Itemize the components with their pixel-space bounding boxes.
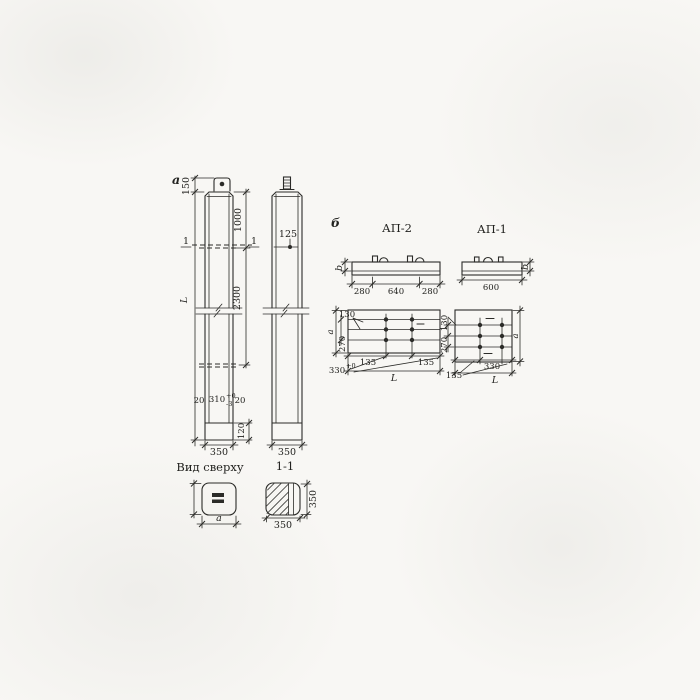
bolt-dot bbox=[384, 338, 388, 342]
dim-20-right: 20 bbox=[235, 396, 246, 406]
dim-130-ap1: 130 bbox=[440, 315, 450, 331]
top-view: Вид сверху a bbox=[176, 460, 243, 528]
dim-310-tol-minus: -3 bbox=[226, 400, 232, 408]
ap2-group: АП-2 b 280 640 280 bbox=[326, 221, 445, 384]
dim-270-ap2: 270 bbox=[338, 336, 348, 352]
column-top-outline bbox=[202, 483, 236, 515]
top-view-title: Вид сверху bbox=[176, 460, 243, 474]
bolt-dot bbox=[500, 345, 504, 349]
loop-icon bbox=[484, 258, 493, 263]
dim-L: L bbox=[179, 297, 190, 304]
ap2-plan: 130 a 270 135 135 330 +0 L bbox=[326, 306, 444, 384]
anchor-stud-icon bbox=[373, 256, 378, 262]
dim-2300: 2300 bbox=[232, 286, 243, 310]
section-1-1: 1-1 350 350 bbox=[262, 459, 319, 531]
dim-b-ap2: b bbox=[334, 265, 345, 271]
dim-1000: 1000 bbox=[233, 208, 244, 232]
dim-b-ap1: b bbox=[520, 264, 531, 270]
technical-drawing: а 150 1000 2300 L 1 1 20 310 +0 -3 20 12… bbox=[0, 0, 700, 700]
side-view-column: 125 350 bbox=[263, 177, 309, 458]
dim-640: 640 bbox=[388, 287, 404, 297]
section-outline bbox=[266, 483, 300, 515]
dim-600: 600 bbox=[483, 283, 499, 293]
dim-120: 120 bbox=[237, 423, 247, 439]
dim-L-ap2: L bbox=[390, 373, 397, 384]
lug-plate-top bbox=[212, 493, 224, 497]
dim-130-ap2: 130 bbox=[339, 310, 355, 320]
loop-icon bbox=[380, 258, 389, 262]
dim-150: 150 bbox=[181, 177, 192, 195]
anchor-stud-icon bbox=[499, 257, 504, 262]
dim-270-ap1: 270 bbox=[440, 337, 450, 353]
lug-plate-bottom bbox=[212, 500, 224, 504]
bolt-dot bbox=[478, 334, 482, 338]
ap2-title: АП-2 bbox=[382, 221, 412, 235]
dim-125: 125 bbox=[279, 229, 297, 240]
view-b-label: б bbox=[331, 215, 340, 230]
dim-350-horiz: 350 bbox=[274, 520, 292, 531]
dim-a-ap2: a bbox=[326, 329, 336, 334]
dim-350-vert: 350 bbox=[308, 490, 319, 508]
dim-350-front: 350 bbox=[210, 447, 228, 458]
bolt-dot bbox=[410, 317, 414, 321]
lifting-lug-icon bbox=[214, 178, 230, 191]
dim-L-ap1: L bbox=[491, 375, 498, 386]
dim-330-ap2: 330 bbox=[329, 366, 345, 376]
dim-20-left: 20 bbox=[194, 396, 205, 406]
ap1-plan: 130 270 a 330 135 L bbox=[440, 306, 524, 386]
loop-icon bbox=[416, 258, 425, 262]
front-view-column: а 150 1000 2300 L 1 1 20 310 +0 -3 20 12… bbox=[172, 172, 259, 458]
section-mark-left: 1 bbox=[183, 236, 189, 247]
bolt-dot bbox=[500, 323, 504, 327]
dim-a-ap1: a bbox=[511, 333, 521, 338]
ap1-elevation: 600 b bbox=[457, 257, 534, 293]
bolt-dot bbox=[410, 327, 414, 331]
lug-hole bbox=[220, 182, 225, 187]
dim-135-ap1: 135 bbox=[446, 371, 462, 381]
bolt-dot bbox=[384, 327, 388, 331]
ap1-title: АП-1 bbox=[477, 222, 507, 236]
dim-280-right: 280 bbox=[422, 287, 438, 297]
dim-310: 310 bbox=[209, 395, 225, 405]
bolt-dot bbox=[478, 323, 482, 327]
view-a-label: а bbox=[172, 172, 180, 187]
bolt-dot bbox=[478, 345, 482, 349]
dim-350-side: 350 bbox=[278, 447, 296, 458]
ap1-group: АП-1 600 b bbox=[440, 222, 534, 386]
reference-point bbox=[288, 245, 292, 249]
dim-a-topview: a bbox=[216, 513, 222, 524]
bolt-dot bbox=[500, 334, 504, 338]
anchor-stud-icon bbox=[408, 256, 413, 262]
hatching bbox=[267, 483, 289, 515]
ap2-elevation: b 280 640 280 bbox=[334, 256, 445, 297]
anchor-stud-icon bbox=[475, 257, 480, 262]
dim-280-left: 280 bbox=[354, 287, 370, 297]
bolt-dot bbox=[384, 317, 388, 321]
drawing-sheet: а 150 1000 2300 L 1 1 20 310 +0 -3 20 12… bbox=[0, 0, 700, 700]
section-title: 1-1 bbox=[276, 459, 295, 473]
dim-330-ap1: 330 bbox=[484, 362, 500, 372]
bolt-dot bbox=[410, 338, 414, 342]
section-mark-right: 1 bbox=[251, 236, 257, 247]
threaded-stud-icon bbox=[280, 177, 294, 190]
